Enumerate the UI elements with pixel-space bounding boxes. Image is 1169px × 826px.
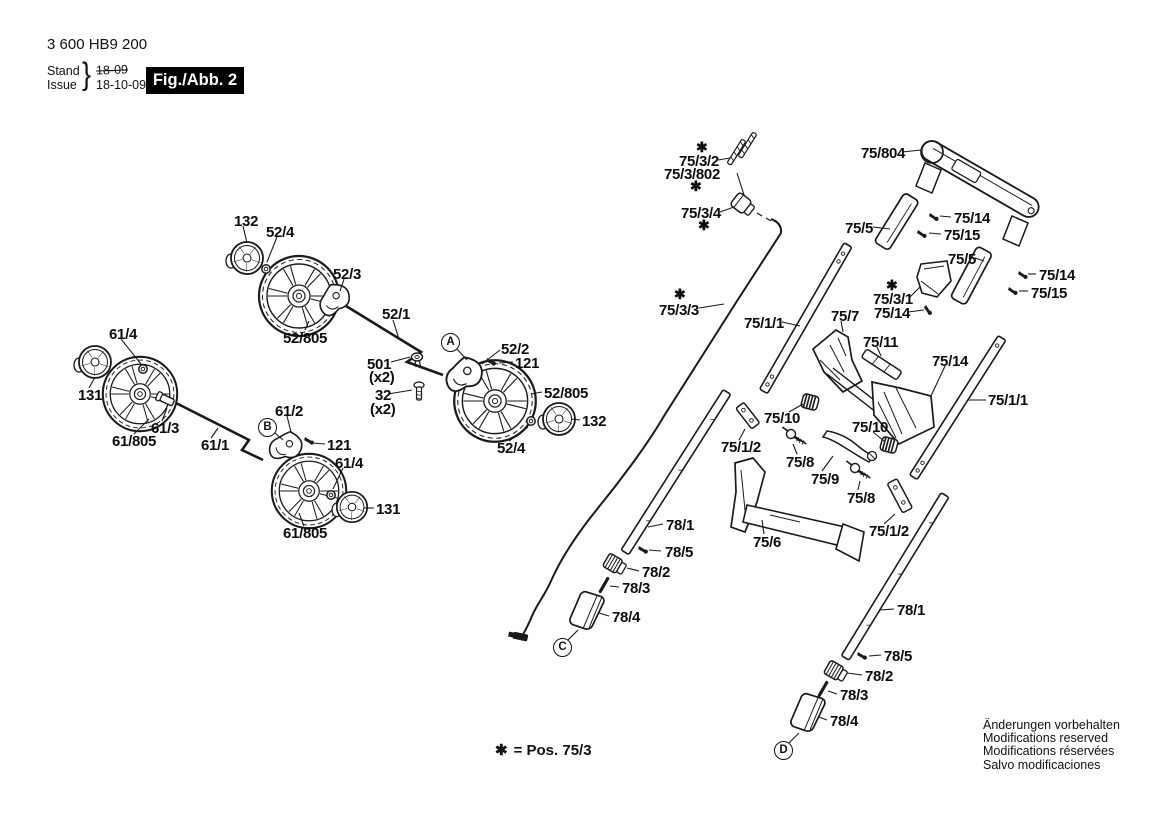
- part-label-75-15: 75/15: [1031, 287, 1067, 300]
- part-label--: ✱: [690, 181, 701, 192]
- callout-circle-D: D: [774, 741, 793, 760]
- grip-75-5-left: [874, 192, 919, 250]
- hubcap-132-left: [226, 242, 263, 274]
- part-label-61-4: 61/4: [109, 328, 137, 341]
- part-label-78-2: 78/2: [865, 670, 893, 683]
- hubcap-132-right: [538, 403, 575, 435]
- screw-75-14-2: [1017, 271, 1028, 280]
- part-label--x2-: (x2): [369, 371, 394, 384]
- part-label-52-1: 52/1: [382, 308, 410, 321]
- nut-78-2-right: [823, 660, 848, 683]
- figure-badge: Fig./Abb. 2: [146, 67, 244, 94]
- stand-value: 18-09: [96, 62, 128, 77]
- legend-star-symbol: ✱: [495, 742, 508, 759]
- part-label-75-1-1: 75/1/1: [744, 317, 784, 330]
- knob-75-10-right: [879, 436, 898, 454]
- part-label--: ✱: [696, 142, 707, 153]
- screw-78-5-left: [638, 546, 649, 554]
- part-label-75-15: 75/15: [944, 229, 980, 242]
- part-label-121: 121: [515, 357, 539, 370]
- part-label-61-2: 61/2: [275, 405, 303, 418]
- bar-75-11: [861, 349, 902, 380]
- screw-78-5-right: [857, 652, 868, 660]
- part-label-75-1-2: 75/1/2: [869, 525, 909, 538]
- legend-text: = Pos. 75/3: [514, 742, 592, 759]
- part-label-52-805: 52/805: [544, 387, 588, 400]
- screw-121-b: [304, 437, 315, 445]
- issue-label: Issue: [47, 78, 77, 92]
- part-label-75-10: 75/10: [852, 421, 888, 434]
- part-label-78-2: 78/2: [642, 566, 670, 579]
- part-label--: ✱: [698, 220, 709, 231]
- bracket-75-1-2-right: [887, 479, 912, 513]
- part-label-61-805: 61/805: [112, 435, 156, 448]
- bolt-75-8-left: [780, 427, 809, 445]
- part-number: 3 600 HB9 200: [47, 36, 147, 53]
- part-label-75-5: 75/5: [948, 253, 976, 266]
- bolt-75-8-right: [844, 461, 873, 479]
- part-label-121: 121: [327, 439, 351, 452]
- part-label-131: 131: [376, 503, 400, 516]
- hubcap-131-left: [74, 346, 111, 378]
- part-label-75-1-1: 75/1/1: [988, 394, 1028, 407]
- callout-circle-C: C: [553, 638, 572, 657]
- part-label-75-804: 75/804: [861, 147, 905, 160]
- footer-line-fr: Modifications réservées: [983, 745, 1120, 758]
- part-label-131: 131: [78, 389, 102, 402]
- part-label-61-1: 61/1: [201, 439, 229, 452]
- part-label-75-6: 75/6: [753, 536, 781, 549]
- part-label-52-4: 52/4: [497, 442, 525, 455]
- part-label-75-14: 75/14: [932, 355, 968, 368]
- guide-75-3-1: [917, 261, 951, 297]
- part-label--: ✱: [674, 289, 685, 300]
- callout-circle-B: B: [258, 418, 277, 437]
- washer-52-4-right: [527, 417, 535, 425]
- part-label-75-14: 75/14: [954, 212, 990, 225]
- part-label-78-4: 78/4: [612, 611, 640, 624]
- part-label-78-1: 78/1: [897, 604, 925, 617]
- part-label-52-3: 52/3: [333, 268, 361, 281]
- washer-61-4-left: [139, 365, 147, 373]
- part-label-75-14: 75/14: [1039, 269, 1075, 282]
- part-label-78-4: 78/4: [830, 715, 858, 728]
- callout-circle-A: A: [441, 333, 460, 352]
- tube-78-1-right: [841, 493, 948, 661]
- part-label-61-805: 61/805: [283, 527, 327, 540]
- washer-52-4-left: [262, 265, 270, 273]
- part-label-52-4: 52/4: [266, 226, 294, 239]
- sleeve-78-4-right: [787, 689, 827, 735]
- assembly-dashes: [757, 213, 771, 221]
- part-label-132: 132: [582, 415, 606, 428]
- part-label-75-8: 75/8: [786, 456, 814, 469]
- part-label-78-3: 78/3: [622, 582, 650, 595]
- console-75-6: [731, 458, 864, 561]
- part-label-75-5: 75/5: [845, 222, 873, 235]
- legend-note: ✱= Pos. 75/3: [495, 741, 592, 759]
- nut-78-2-left: [602, 553, 627, 576]
- diagram-canvas: 3 600 HB9 200 Stand Issue } 18-09 18-10-…: [0, 0, 1169, 826]
- washer-61-4-right: [327, 491, 335, 499]
- part-label-75-14: 75/14: [874, 307, 910, 320]
- part-label-75-10: 75/10: [764, 412, 800, 425]
- part-label-78-1: 78/1: [666, 519, 694, 532]
- connector-75-3-4: [730, 192, 757, 218]
- part-label-61-3: 61/3: [151, 422, 179, 435]
- screw-75-15-2: [1007, 287, 1018, 296]
- stand-label: Stand: [47, 64, 80, 78]
- part-label-75-8: 75/8: [847, 492, 875, 505]
- header-brace: }: [82, 57, 91, 93]
- part-label-75-11: 75/11: [863, 336, 898, 349]
- sleeve-78-4-left: [566, 587, 606, 633]
- part-label-75-9: 75/9: [811, 473, 839, 486]
- screw-32: [414, 382, 424, 400]
- part-label-75-7: 75/7: [831, 310, 859, 323]
- part-label--: ✱: [886, 280, 897, 291]
- issue-value: 18-10-09: [96, 78, 146, 92]
- part-label-78-3: 78/3: [840, 689, 868, 702]
- part-label-78-5: 78/5: [884, 650, 912, 663]
- screw-75-14-1: [928, 213, 939, 222]
- part-label-75-3-3: 75/3/3: [659, 304, 699, 317]
- part-label--x2-: (x2): [370, 403, 395, 416]
- part-label-78-5: 78/5: [665, 546, 693, 559]
- part-label-52-805: 52/805: [283, 332, 327, 345]
- bracket-75-1-2-left: [736, 402, 760, 429]
- footer-line-es: Salvo modificaciones: [983, 759, 1120, 772]
- screw-75-15-1: [916, 230, 927, 239]
- part-label-75-1-2: 75/1/2: [721, 441, 761, 454]
- pin-78-3-left: [598, 576, 610, 593]
- part-label-132: 132: [234, 215, 258, 228]
- footer-notice: Änderungen vorbehalten Modifications res…: [983, 719, 1120, 772]
- pin-78-3-right: [817, 680, 829, 697]
- knob-75-10-left: [800, 393, 819, 411]
- part-label-61-4: 61/4: [335, 457, 363, 470]
